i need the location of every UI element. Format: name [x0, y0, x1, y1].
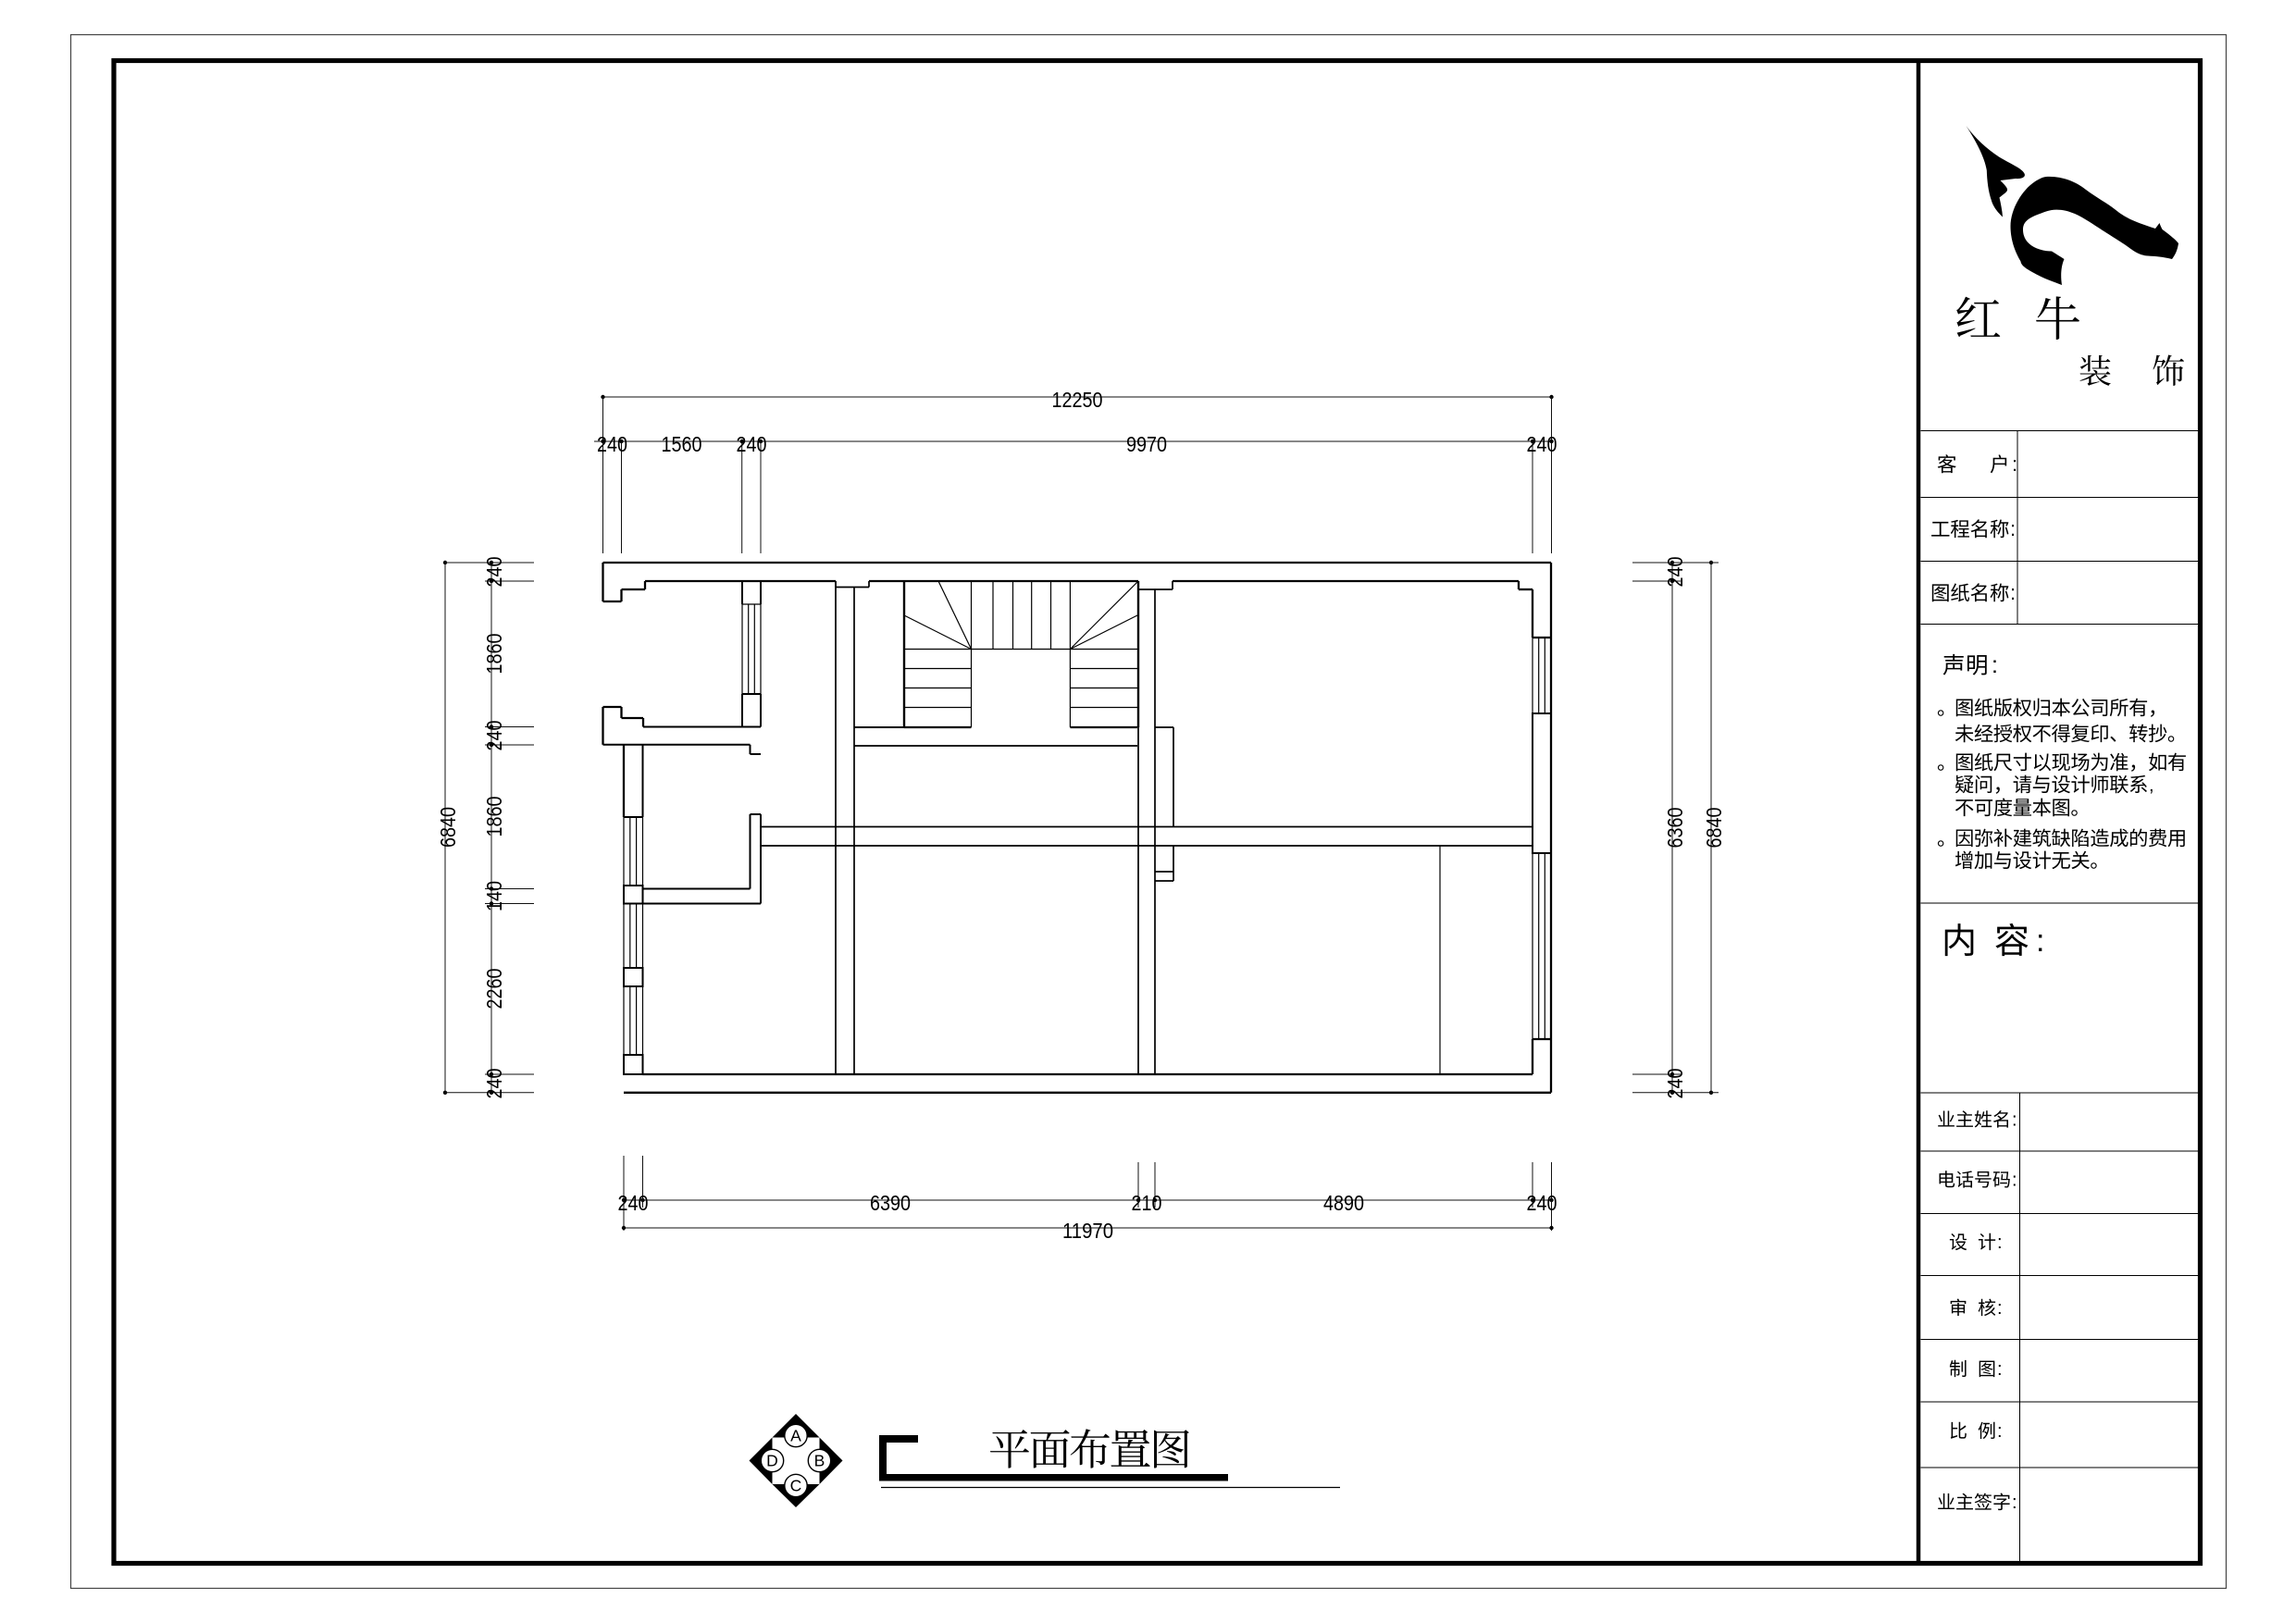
- svg-text:1560: 1560: [662, 432, 702, 456]
- svg-text:B: B: [814, 1452, 825, 1470]
- svg-text:6840: 6840: [436, 807, 460, 848]
- svg-text::: :: [1997, 1298, 2003, 1319]
- svg-text:240: 240: [482, 1069, 506, 1099]
- svg-text:240: 240: [1527, 432, 1558, 456]
- svg-text::: :: [2010, 517, 2016, 540]
- svg-text::: :: [2012, 1110, 2017, 1131]
- svg-text:4890: 4890: [1323, 1191, 1364, 1215]
- svg-text::: :: [2012, 1171, 2017, 1191]
- svg-text:240: 240: [1527, 1191, 1558, 1215]
- svg-text:6360: 6360: [1663, 808, 1687, 849]
- svg-text::: :: [2036, 923, 2044, 959]
- svg-text:,: ,: [2149, 775, 2154, 796]
- svg-text:D: D: [766, 1452, 778, 1470]
- svg-text:240: 240: [482, 721, 506, 751]
- svg-text:1860: 1860: [482, 634, 506, 675]
- svg-text::: :: [1997, 1233, 2003, 1253]
- svg-text:2260: 2260: [482, 969, 506, 1010]
- svg-text:6840: 6840: [1702, 808, 1726, 849]
- svg-text::: :: [1997, 1421, 2003, 1442]
- svg-text:C: C: [790, 1477, 802, 1495]
- svg-text:240: 240: [618, 1191, 649, 1215]
- svg-text::: :: [1992, 652, 1998, 678]
- svg-text:240: 240: [1663, 1069, 1687, 1099]
- svg-text:240: 240: [1663, 557, 1687, 588]
- svg-text:6390: 6390: [870, 1191, 911, 1215]
- svg-text:9970: 9970: [1126, 432, 1167, 456]
- svg-text:A: A: [790, 1427, 801, 1445]
- svg-text:240: 240: [482, 557, 506, 588]
- svg-text:12250: 12250: [1052, 388, 1103, 412]
- svg-text::: :: [2010, 581, 2016, 604]
- svg-text::: :: [2012, 452, 2017, 476]
- svg-text::: :: [2012, 1493, 2017, 1513]
- svg-text:240: 240: [737, 432, 767, 456]
- svg-text:210: 210: [1132, 1191, 1162, 1215]
- svg-text:1860: 1860: [482, 797, 506, 837]
- svg-text:11970: 11970: [1062, 1219, 1113, 1243]
- svg-text::: :: [1997, 1359, 2003, 1380]
- svg-text:240: 240: [597, 432, 627, 456]
- svg-text:140: 140: [482, 881, 506, 911]
